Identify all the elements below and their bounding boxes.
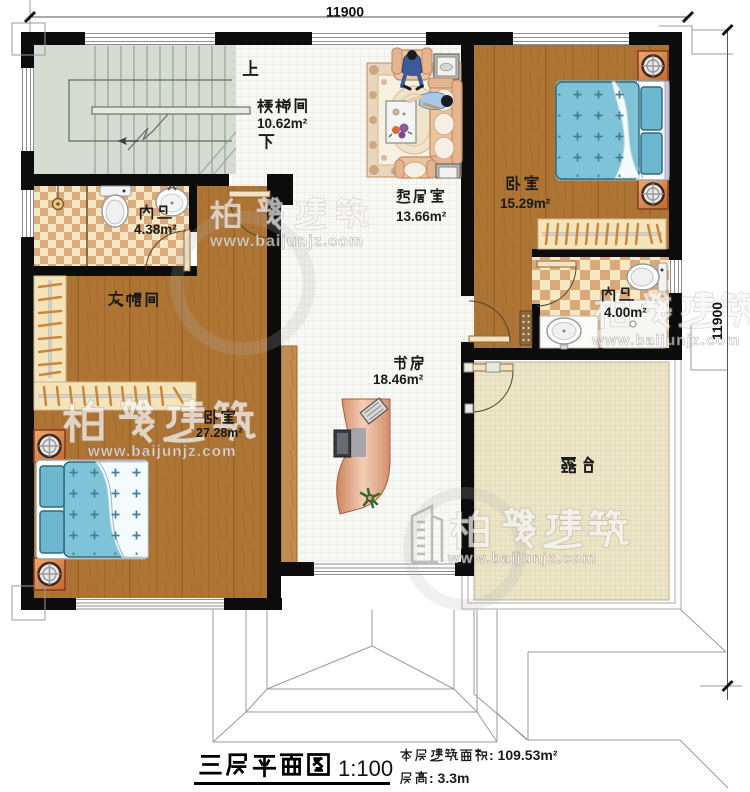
svg-text:www.baijunjz.com: www.baijunjz.com xyxy=(447,550,597,567)
svg-text:1:100: 1:100 xyxy=(338,756,393,781)
svg-text:13.66m²: 13.66m² xyxy=(396,209,447,224)
svg-text:4.38m²: 4.38m² xyxy=(134,222,177,237)
svg-text:www.baijunjz.com: www.baijunjz.com xyxy=(87,443,237,460)
svg-text:: 3.3m: : 3.3m xyxy=(429,770,469,786)
svg-text:4.00m²: 4.00m² xyxy=(604,305,647,320)
svg-text:www.baijunjz.com: www.baijunjz.com xyxy=(209,233,364,250)
svg-text:11900: 11900 xyxy=(709,302,725,340)
svg-text:: 109.53m²: : 109.53m² xyxy=(489,747,558,763)
svg-text:11900: 11900 xyxy=(326,4,364,20)
svg-text:27.28m²: 27.28m² xyxy=(196,426,243,440)
svg-text:18.46m²: 18.46m² xyxy=(373,372,424,387)
svg-text:15.29m²: 15.29m² xyxy=(500,196,551,211)
svg-text:10.62m²: 10.62m² xyxy=(257,116,308,131)
